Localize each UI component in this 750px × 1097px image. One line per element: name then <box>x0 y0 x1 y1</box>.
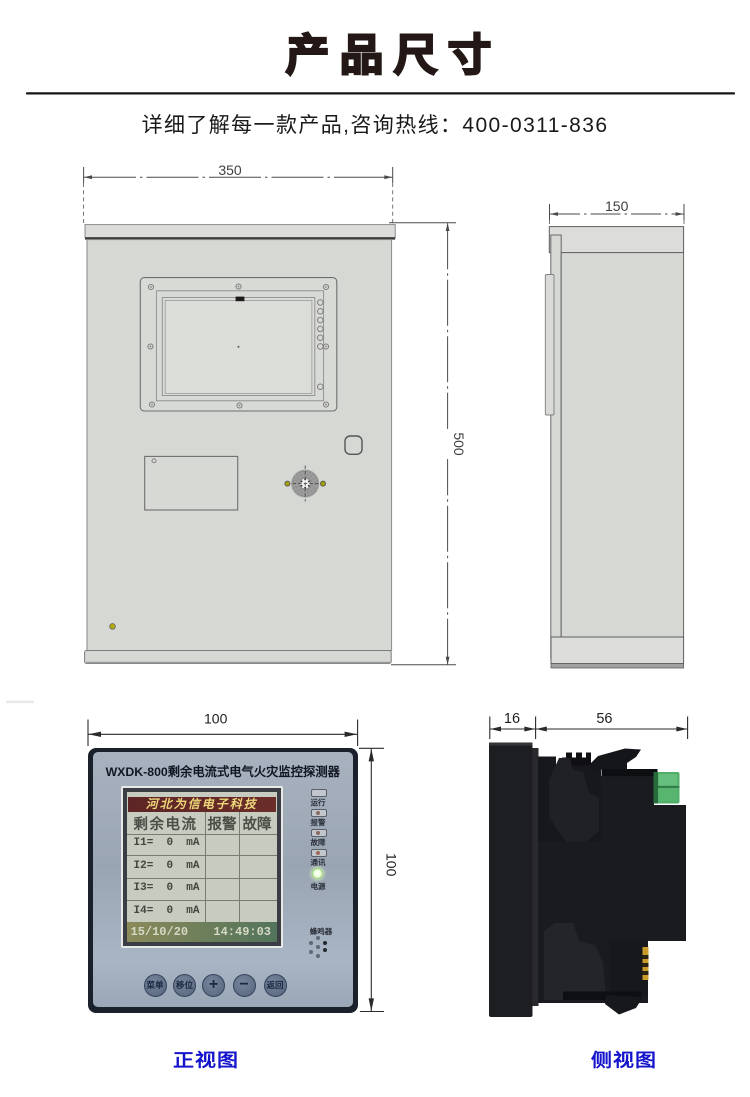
svg-text:100: 100 <box>204 711 228 727</box>
svg-text:500: 500 <box>451 432 467 456</box>
svg-text:150: 150 <box>605 198 629 214</box>
svg-text:100: 100 <box>384 853 400 877</box>
svg-text:56: 56 <box>596 711 612 727</box>
svg-text:16: 16 <box>504 711 520 727</box>
svg-text:350: 350 <box>218 162 242 178</box>
